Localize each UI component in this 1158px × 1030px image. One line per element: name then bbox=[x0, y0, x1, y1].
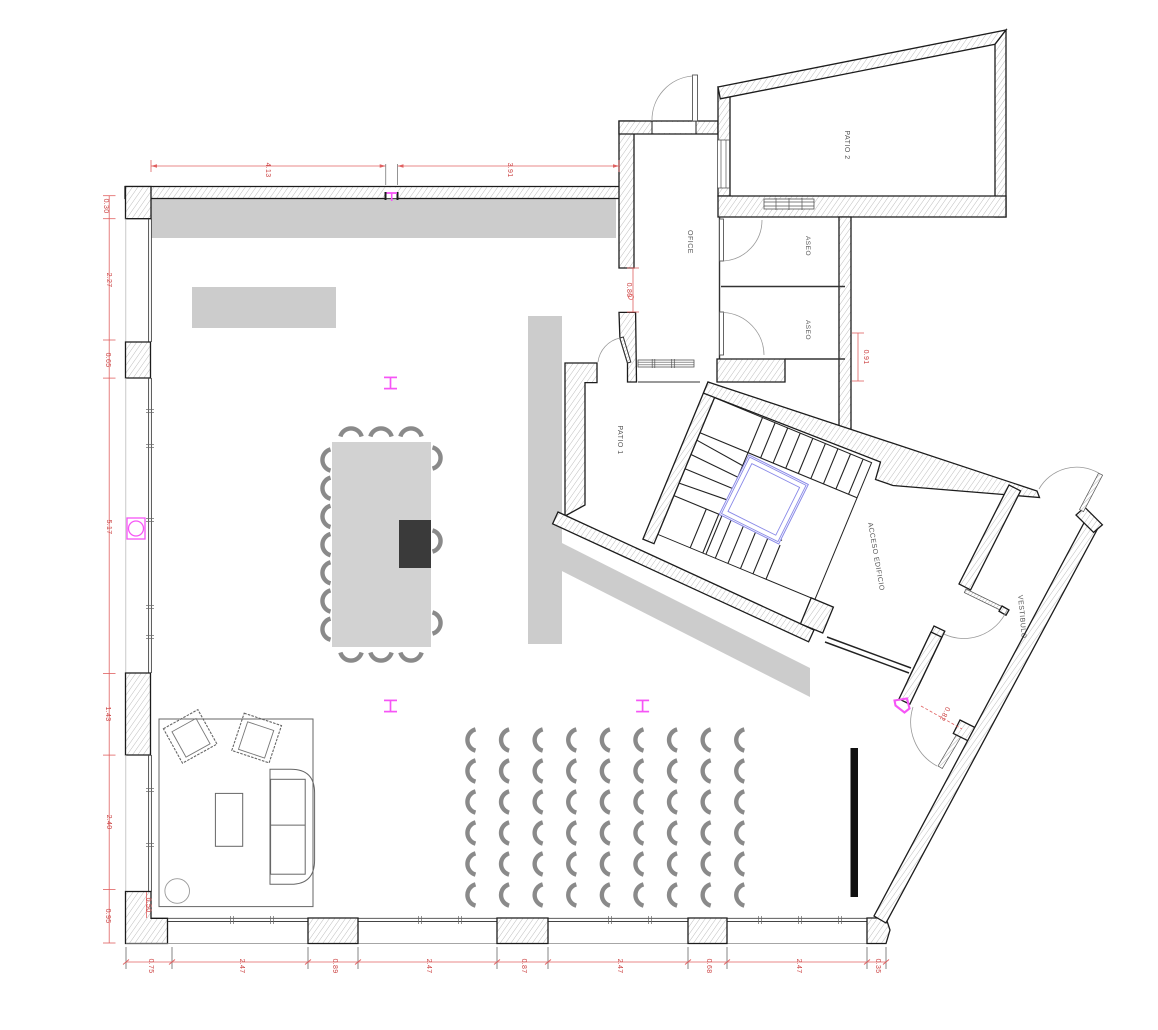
svg-text:ASEO: ASEO bbox=[804, 236, 811, 256]
svg-text:3.91: 3.91 bbox=[506, 163, 513, 178]
svg-text:1.43: 1.43 bbox=[104, 707, 111, 722]
svg-text:0.75: 0.75 bbox=[147, 959, 154, 974]
svg-text:2.40: 2.40 bbox=[105, 815, 112, 830]
svg-text:0.35: 0.35 bbox=[874, 959, 881, 974]
svg-text:4.13: 4.13 bbox=[264, 163, 271, 178]
svg-text:0.68: 0.68 bbox=[705, 959, 712, 974]
svg-text:PATIO 1: PATIO 1 bbox=[616, 425, 623, 454]
svg-text:PATIO 2: PATIO 2 bbox=[843, 130, 850, 159]
svg-text:0.30: 0.30 bbox=[102, 199, 109, 214]
svg-text:0.95: 0.95 bbox=[104, 909, 111, 924]
svg-text:ASEO: ASEO bbox=[804, 320, 811, 340]
svg-text:2.47: 2.47 bbox=[238, 959, 245, 974]
svg-text:0.50: 0.50 bbox=[144, 898, 151, 913]
svg-text:5.17: 5.17 bbox=[105, 520, 112, 535]
svg-text:2.47: 2.47 bbox=[795, 959, 802, 974]
svg-text:2.47: 2.47 bbox=[425, 959, 432, 974]
svg-text:0.89: 0.89 bbox=[331, 959, 338, 974]
svg-text:0.87: 0.87 bbox=[520, 959, 527, 974]
svg-text:0.91: 0.91 bbox=[862, 350, 869, 365]
svg-text:2.47: 2.47 bbox=[616, 959, 623, 974]
svg-text:0.65: 0.65 bbox=[104, 353, 111, 368]
svg-text:2.27: 2.27 bbox=[105, 273, 112, 288]
svg-text:OFICE: OFICE bbox=[686, 230, 693, 254]
svg-text:0.80: 0.80 bbox=[625, 283, 632, 298]
